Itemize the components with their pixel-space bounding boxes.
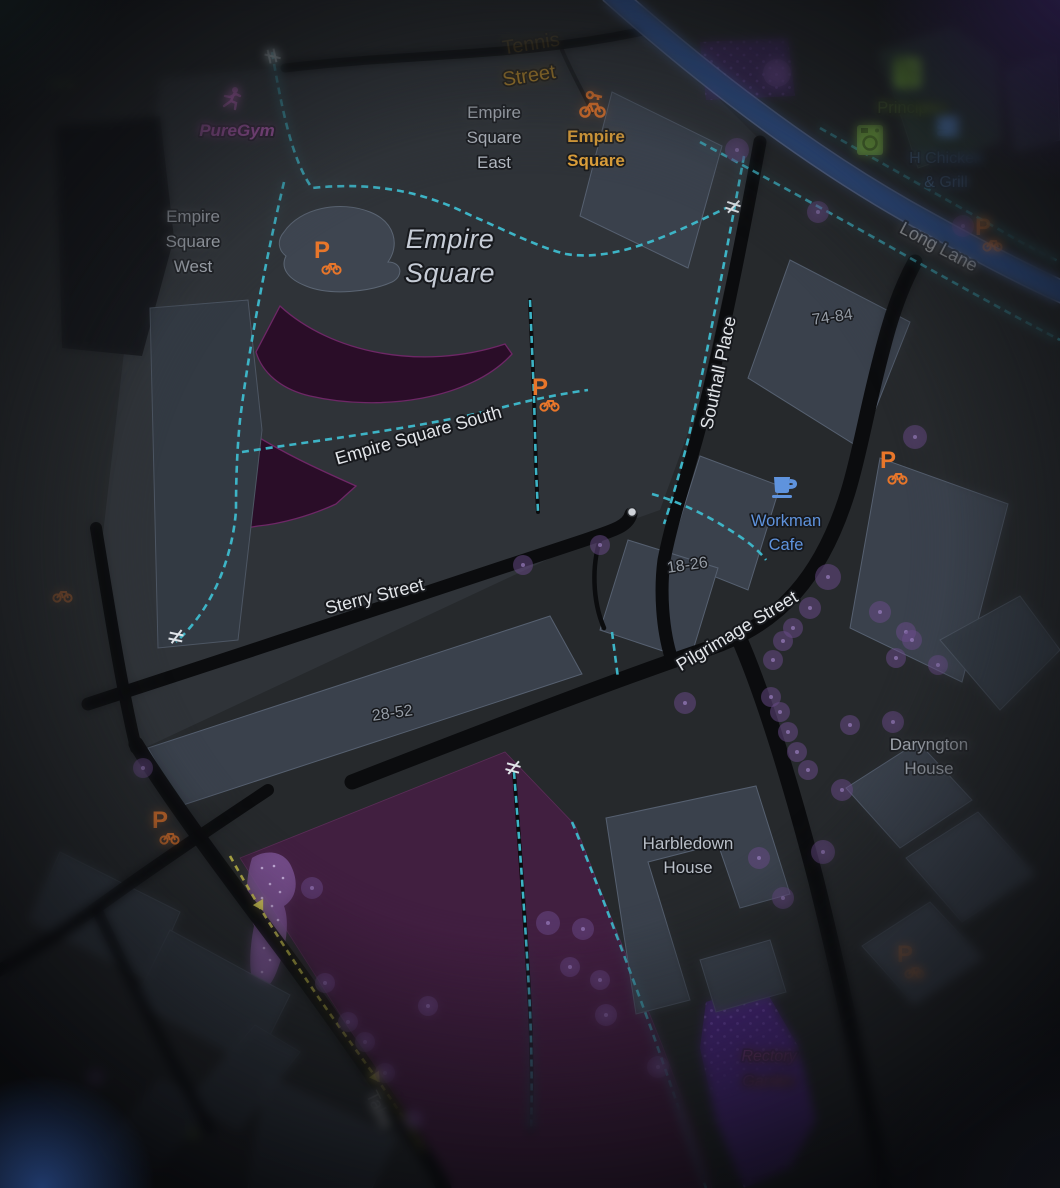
map-canvas[interactable]: P xyxy=(0,0,1060,1188)
svg-text:Square: Square xyxy=(405,258,495,288)
tree-marker xyxy=(418,996,438,1016)
tree-marker xyxy=(186,1127,200,1141)
poi-label-puregym[interactable]: PureGym xyxy=(199,121,275,140)
tree-marker xyxy=(725,138,749,162)
map-svg[interactable]: P xyxy=(0,0,1060,1188)
tree-marker xyxy=(748,847,770,869)
tree-marker xyxy=(952,215,974,237)
tree-marker xyxy=(315,973,335,993)
poi-label-workman-cafe[interactable]: Workman xyxy=(751,512,821,530)
place-label-empire-square-west: Empire xyxy=(166,207,220,226)
tree-marker xyxy=(815,564,841,590)
building xyxy=(1006,54,1060,150)
tree-marker xyxy=(560,957,580,977)
tree-marker xyxy=(763,59,791,87)
poi-label-principles[interactable]: Principles xyxy=(877,99,949,117)
svg-text:Cafe[interactable]: Cafe xyxy=(769,536,804,554)
tree-marker xyxy=(778,722,798,742)
tree-marker xyxy=(403,1110,423,1130)
tree-marker xyxy=(811,840,835,864)
tree-marker xyxy=(882,711,904,733)
tree-marker xyxy=(590,970,610,990)
tree-marker xyxy=(869,601,891,623)
tree-marker xyxy=(799,597,821,619)
square-pond xyxy=(279,206,400,291)
svg-text:House: House xyxy=(904,759,953,778)
place-label-partial: ress xyxy=(48,75,76,92)
svg-text:& Grill[interactable]: & Grill xyxy=(924,174,968,191)
place-label-rectory-garden: Rectory xyxy=(741,1048,797,1065)
place-label-empire-square: Empire xyxy=(406,224,495,254)
tree-marker xyxy=(928,655,948,675)
tree-marker xyxy=(133,758,153,778)
svg-text:West: West xyxy=(174,257,213,276)
tree-marker xyxy=(355,1032,375,1052)
place-label-daryngton-house: Daryngton xyxy=(890,735,968,754)
svg-text:House: House xyxy=(663,858,712,877)
tree-marker xyxy=(338,1012,358,1032)
tree-marker xyxy=(902,630,922,650)
tree-marker xyxy=(513,555,533,575)
tree-marker xyxy=(770,702,790,722)
tree-marker xyxy=(572,918,594,940)
tree-marker xyxy=(85,1068,105,1088)
tree-marker xyxy=(536,911,560,935)
tree-marker xyxy=(840,715,860,735)
svg-text:Square[interactable]: Square xyxy=(567,151,625,170)
place-label-empire-square-east: Empire xyxy=(467,103,521,122)
tree-marker xyxy=(903,425,927,449)
tree-marker xyxy=(772,887,794,909)
poi-label-h-chicken[interactable]: H Chicken xyxy=(909,150,983,167)
tree-marker xyxy=(831,779,853,801)
tree-marker xyxy=(763,650,783,670)
tree-marker xyxy=(886,648,906,668)
tree-marker xyxy=(773,631,793,651)
svg-text:Garden: Garden xyxy=(742,1073,795,1090)
tree-marker xyxy=(674,692,696,714)
tree-marker xyxy=(807,201,829,223)
tree-marker xyxy=(375,1063,395,1083)
svg-text:East: East xyxy=(477,153,511,172)
tree-marker xyxy=(647,1056,669,1078)
svg-text:Square: Square xyxy=(467,128,522,147)
tree-marker xyxy=(301,877,323,899)
place-label-harbledown-house: Harbledown xyxy=(643,834,734,853)
tree-marker xyxy=(590,535,610,555)
laundry-icon[interactable] xyxy=(857,125,883,155)
burger-icon[interactable] xyxy=(937,117,959,136)
laundry-icon[interactable] xyxy=(895,57,921,87)
tree-marker xyxy=(798,760,818,780)
street-end-dot xyxy=(628,508,637,517)
svg-text:Square: Square xyxy=(166,232,221,251)
tree-marker xyxy=(595,1004,617,1026)
poi-label-bike-share[interactable]: Empire xyxy=(567,127,625,146)
tree-marker xyxy=(787,742,807,762)
